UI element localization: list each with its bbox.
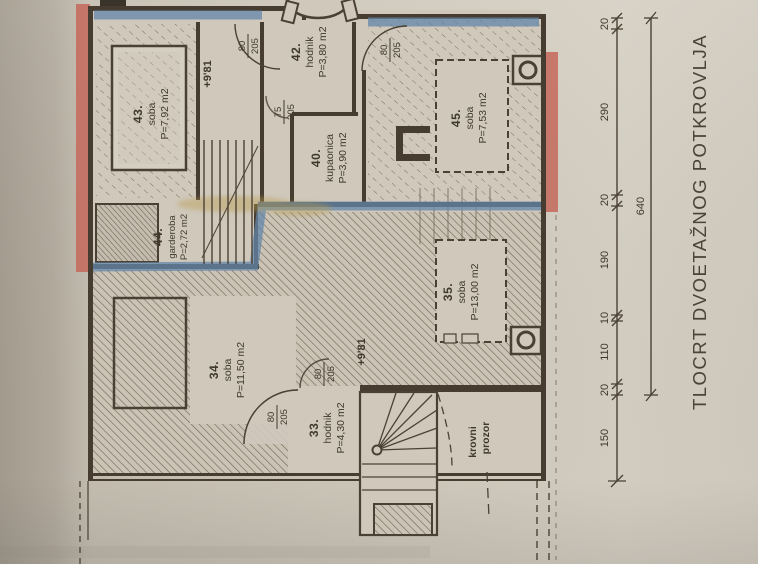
svg-text:P=11,50 m2: P=11,50 m2 bbox=[235, 342, 247, 398]
svg-text:205: 205 bbox=[286, 104, 297, 120]
svg-text:soba: soba bbox=[222, 358, 234, 381]
svg-text:P=7,92 m2: P=7,92 m2 bbox=[159, 88, 171, 139]
svg-text:33.: 33. bbox=[307, 419, 321, 437]
dim-label-3: 190 bbox=[599, 251, 611, 269]
level-mark-lower: +9'81 bbox=[356, 338, 368, 365]
svg-text:42.: 42. bbox=[289, 43, 303, 61]
svg-text:40.: 40. bbox=[309, 149, 323, 167]
dim-label-0: 20 bbox=[599, 18, 611, 30]
svg-text:prozor: prozor bbox=[480, 422, 492, 455]
paper-shadow bbox=[0, 546, 430, 558]
svg-text:44.: 44. bbox=[151, 228, 165, 246]
svg-text:205: 205 bbox=[392, 42, 403, 58]
level-mark-upper: +9'81 bbox=[202, 60, 214, 87]
svg-text:soba: soba bbox=[464, 106, 476, 129]
svg-text:34.: 34. bbox=[207, 361, 221, 379]
chimney-icon bbox=[513, 56, 543, 84]
floor-plan-drawing: 43. soba P=7,92 m2 42. hodnik P=3,80 m2 … bbox=[0, 0, 758, 564]
dim-label-4: 10 bbox=[599, 312, 611, 324]
chimney-icon bbox=[511, 327, 541, 354]
svg-text:205: 205 bbox=[326, 366, 337, 382]
svg-text:80: 80 bbox=[379, 45, 390, 56]
svg-text:hodnik: hodnik bbox=[322, 412, 334, 444]
room-34-bed bbox=[114, 298, 186, 408]
svg-text:garderoba: garderoba bbox=[167, 215, 178, 259]
svg-text:krovni: krovni bbox=[467, 426, 479, 458]
room-44-wardrobe bbox=[96, 204, 158, 262]
svg-text:P=3,90 m2: P=3,90 m2 bbox=[337, 132, 349, 183]
svg-text:hodnik: hodnik bbox=[304, 36, 316, 68]
plan-title: TLOCRT DVOETAŽNOG POTKROVLJA bbox=[689, 34, 710, 410]
dim-label-5: 110 bbox=[599, 343, 611, 361]
dim-label-7: 150 bbox=[599, 429, 611, 447]
svg-text:P=7,53 m2: P=7,53 m2 bbox=[477, 92, 489, 143]
svg-text:205: 205 bbox=[279, 409, 290, 425]
svg-text:35.: 35. bbox=[441, 283, 455, 301]
svg-text:P=4,30 m2: P=4,30 m2 bbox=[335, 402, 347, 453]
dim-label-6: 20 bbox=[599, 384, 611, 396]
svg-text:kupaonica: kupaonica bbox=[324, 134, 336, 182]
svg-text:soba: soba bbox=[146, 102, 158, 125]
svg-text:P=13,00 m2: P=13,00 m2 bbox=[469, 263, 481, 320]
svg-text:205: 205 bbox=[250, 38, 261, 54]
svg-text:soba: soba bbox=[456, 280, 468, 303]
dim-label-1: 290 bbox=[599, 103, 611, 121]
svg-text:80: 80 bbox=[266, 412, 277, 423]
dim-label-2: 20 bbox=[599, 194, 611, 206]
svg-text:45.: 45. bbox=[449, 109, 463, 127]
svg-text:75: 75 bbox=[273, 107, 284, 118]
dim-label-overall: 640 bbox=[635, 197, 647, 215]
svg-text:43.: 43. bbox=[131, 105, 145, 123]
svg-text:80: 80 bbox=[313, 369, 324, 380]
stair-lower bbox=[360, 392, 437, 535]
svg-text:P=2,72 m2: P=2,72 m2 bbox=[179, 214, 190, 260]
roof-window-label: krovni prozor bbox=[467, 422, 492, 458]
svg-text:80: 80 bbox=[237, 41, 248, 52]
floor-plan-photo: 43. soba P=7,92 m2 42. hodnik P=3,80 m2 … bbox=[0, 0, 758, 564]
svg-text:P=3,80 m2: P=3,80 m2 bbox=[317, 26, 329, 77]
